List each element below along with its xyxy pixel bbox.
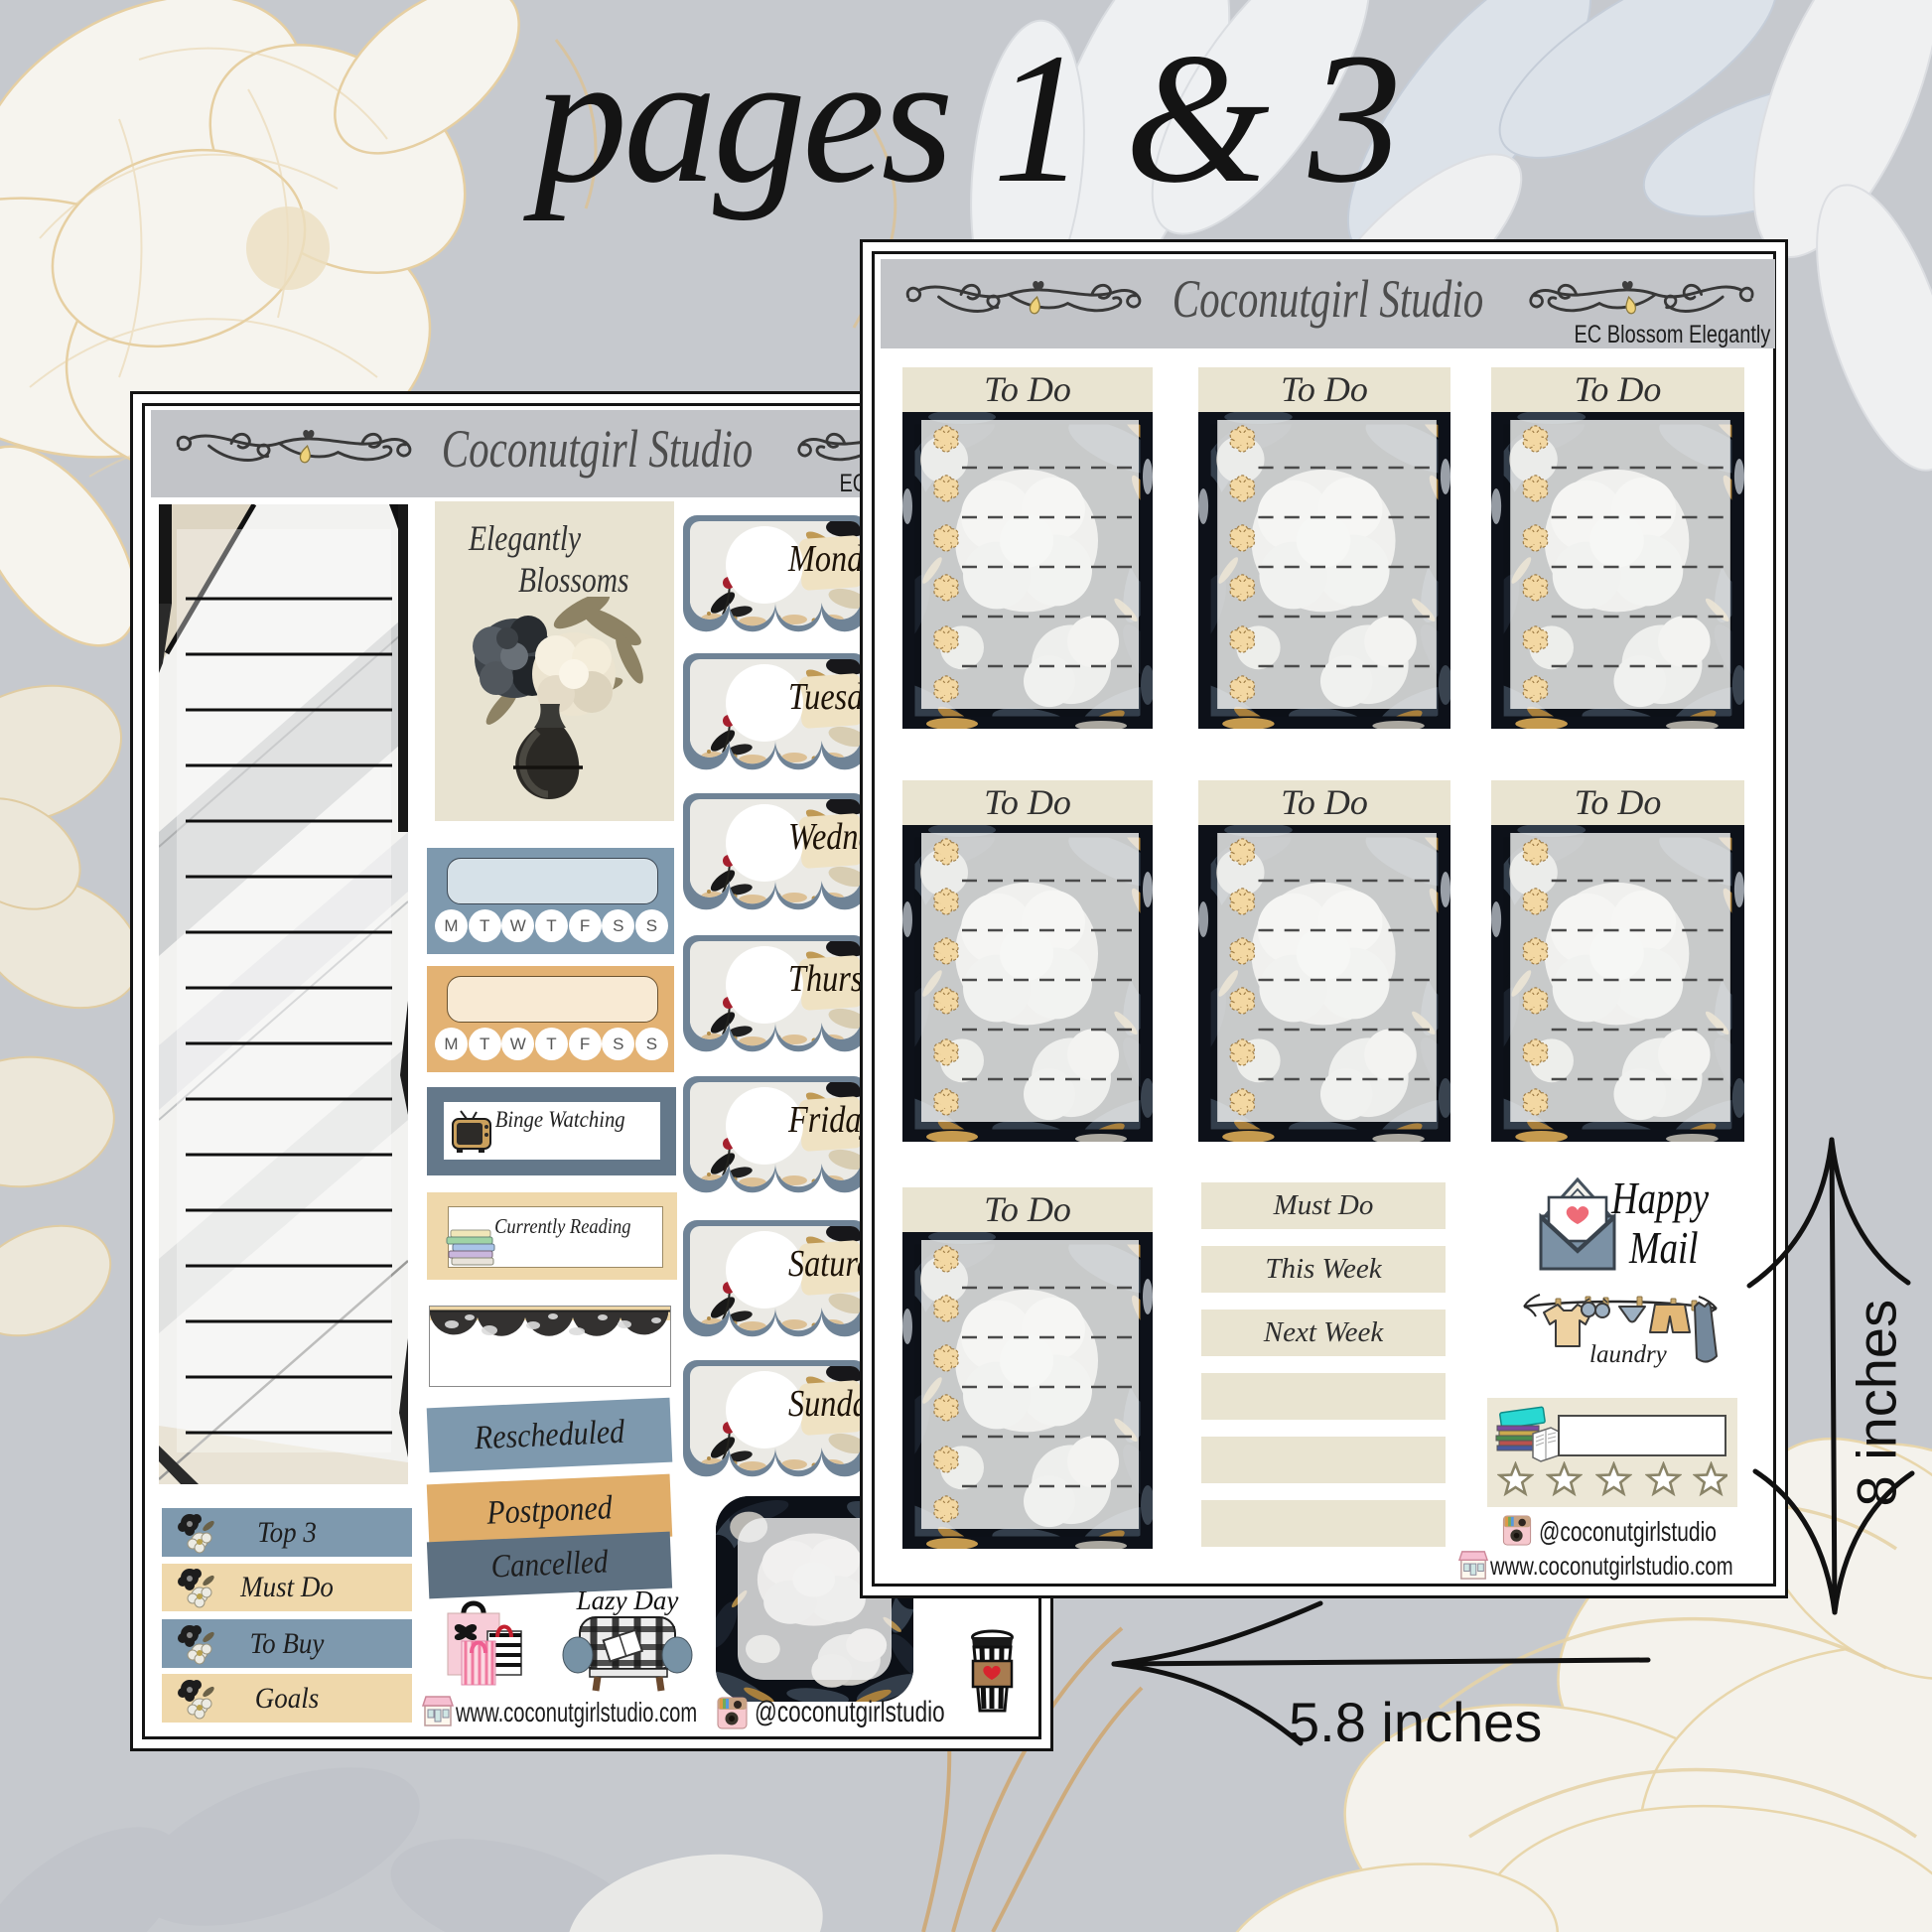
svg-text:laundry: laundry [1589, 1341, 1668, 1368]
